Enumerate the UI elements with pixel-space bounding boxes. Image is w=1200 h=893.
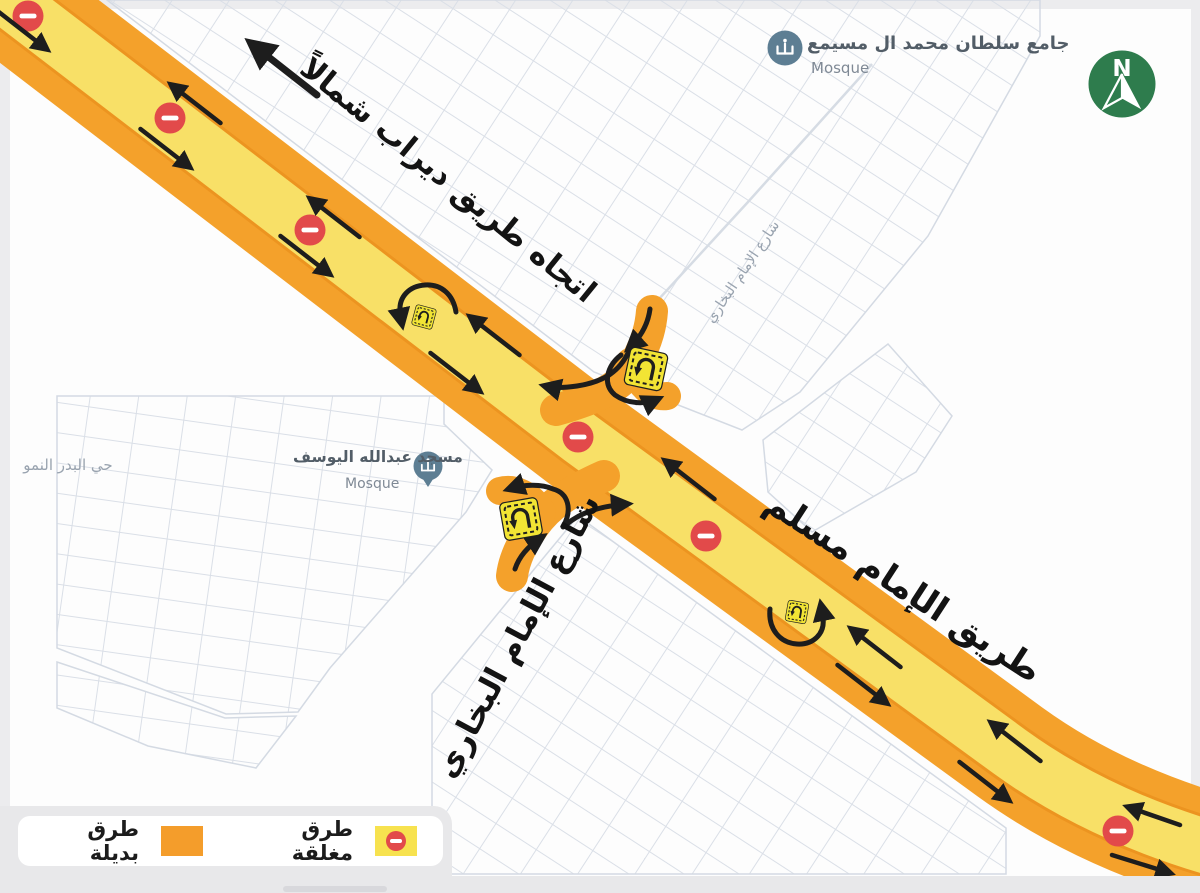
no-entry-icon (563, 422, 594, 453)
closed-road-swatch (375, 826, 417, 856)
no-entry-icon (1103, 816, 1134, 847)
uturn-sign-icon (785, 600, 809, 624)
north-compass-icon: N (1089, 51, 1156, 118)
mosque-south-name: مسجد عبدالله اليوسف (293, 448, 463, 466)
mosque-north-name: جامع سلطان محمد ال مسيمع (807, 33, 1070, 54)
mosque-south-type: Mosque (345, 476, 399, 492)
no-entry-icon (386, 831, 406, 851)
legend: طرق مغلقة طرق بديلة (18, 816, 443, 866)
mosque-icon (768, 31, 803, 66)
bottom-strip (0, 876, 1200, 893)
uturn-sign-icon (623, 346, 668, 391)
no-entry-icon (295, 215, 326, 246)
legend-closed-label: طرق مغلقة (263, 817, 353, 865)
alternative-road-swatch (161, 826, 203, 856)
district-label: حي البدر النمو (23, 456, 112, 474)
no-entry-icon (155, 103, 186, 134)
uturn-sign-icon (499, 497, 543, 541)
mosque-north-type: Mosque (811, 59, 869, 77)
legend-alternative-label: طرق بديلة (58, 817, 139, 865)
bottom-smudge (283, 886, 387, 892)
no-entry-icon (691, 521, 722, 552)
traffic-diversion-map: N اتجاه طريق ديراب شمالاً طريق الإمام مس… (0, 0, 1200, 893)
map-canvas: N (0, 0, 1200, 893)
